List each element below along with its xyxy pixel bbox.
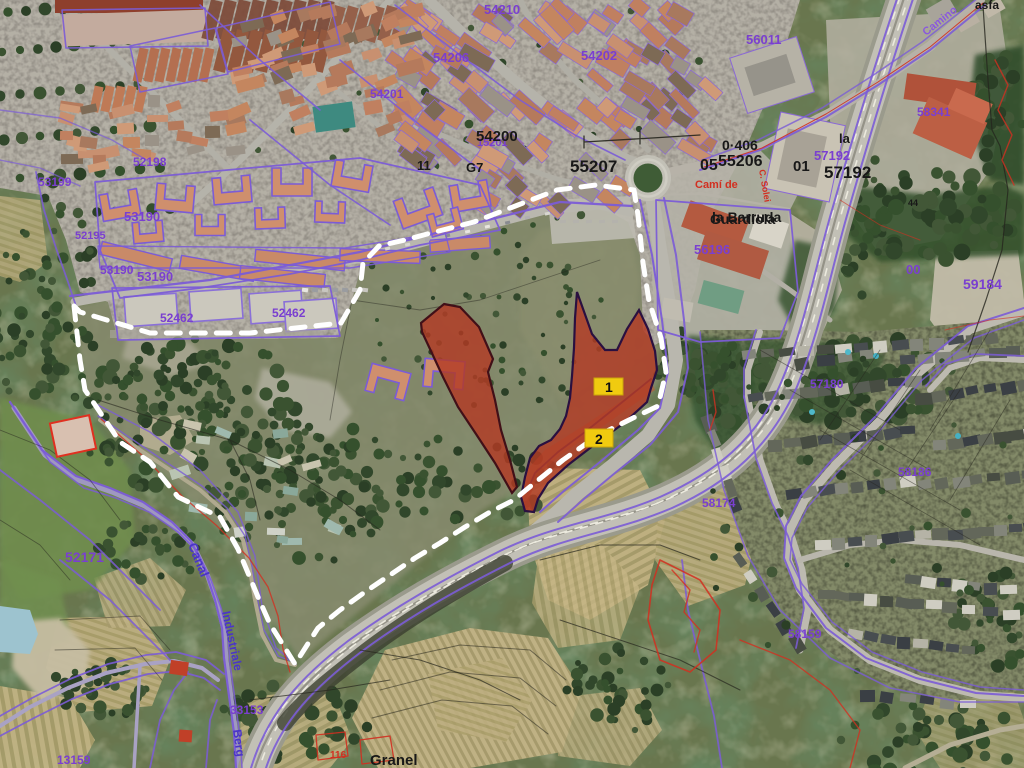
svg-text:52198: 52198 (133, 155, 167, 169)
svg-text:54210: 54210 (484, 2, 520, 17)
svg-text:52462: 52462 (272, 306, 306, 320)
svg-text:56196: 56196 (694, 242, 730, 257)
svg-text:57192: 57192 (824, 163, 871, 182)
svg-text:56011: 56011 (746, 32, 781, 47)
svg-text:53199: 53199 (38, 175, 72, 189)
svg-text:G7: G7 (466, 160, 483, 175)
svg-text:57180: 57180 (810, 377, 844, 391)
svg-text:59184: 59184 (963, 276, 1002, 292)
svg-text:Guardiola: Guardiola (710, 211, 776, 227)
svg-text:55206: 55206 (718, 153, 763, 170)
svg-text:33153: 33153 (230, 703, 264, 717)
svg-text:54200: 54200 (476, 128, 518, 145)
svg-text:52171: 52171 (65, 549, 104, 565)
svg-text:52195: 52195 (75, 230, 106, 242)
svg-text:58174: 58174 (702, 496, 736, 510)
svg-text:53190: 53190 (137, 269, 173, 284)
svg-text:116: 116 (330, 750, 347, 761)
svg-text:54206: 54206 (433, 50, 469, 65)
svg-text:55207: 55207 (570, 157, 617, 176)
svg-text:11: 11 (417, 158, 431, 173)
svg-text:Granel: Granel (370, 752, 418, 768)
svg-text:53190: 53190 (124, 209, 160, 224)
svg-text:1: 1 (605, 379, 613, 395)
svg-text:01: 01 (793, 158, 810, 175)
svg-text:13159: 13159 (57, 753, 91, 767)
svg-text:asfa: asfa (975, 0, 999, 12)
svg-text:58159: 58159 (788, 627, 822, 641)
svg-text:52462: 52462 (160, 311, 194, 325)
svg-text:2: 2 (595, 431, 603, 447)
svg-text:54201: 54201 (370, 87, 404, 101)
svg-text:57192: 57192 (814, 148, 850, 163)
svg-text:44: 44 (908, 198, 918, 208)
svg-text:0·406: 0·406 (722, 137, 758, 153)
svg-text:54202: 54202 (581, 48, 617, 63)
svg-text:00: 00 (906, 262, 920, 277)
svg-text:Camí de: Camí de (695, 179, 738, 191)
svg-text:05: 05 (700, 157, 718, 174)
svg-text:58186: 58186 (898, 465, 932, 479)
svg-text:58341: 58341 (917, 105, 951, 119)
svg-text:53190: 53190 (100, 263, 134, 277)
svg-text:la: la (839, 131, 851, 146)
